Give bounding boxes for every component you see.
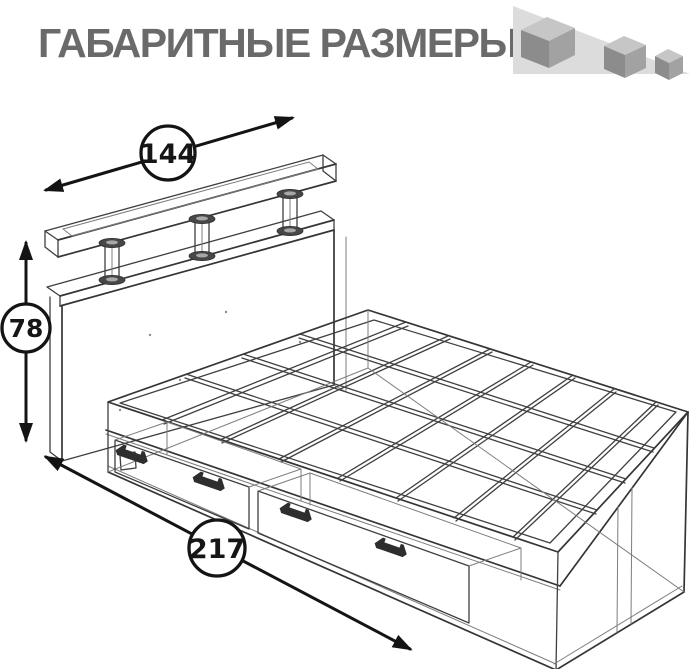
dimension-length: 217	[46, 457, 410, 649]
dimension-width: 144	[46, 118, 292, 190]
post-icon	[99, 238, 125, 284]
page-title: ГАБАРИТНЫЕ РАЗМЕРЫ	[38, 20, 517, 66]
dimension-height: 78	[2, 243, 50, 440]
dimension-length-value: 217	[189, 534, 245, 565]
dimension-height-value: 78	[9, 314, 44, 343]
headboard-panel	[50, 230, 346, 470]
foot-panel-inner-lines	[617, 488, 632, 632]
post-icon	[189, 214, 215, 260]
post-icon	[277, 189, 303, 235]
dimension-diagram-page: ГАБАРИТНЫЕ РАЗМЕРЫ	[0, 0, 700, 669]
cube-small	[655, 49, 683, 80]
storage-drawers	[114, 422, 521, 623]
bed-wireframe-drawing	[45, 155, 688, 669]
shrinking-cubes-icon	[513, 6, 690, 80]
diagram-canvas: ГАБАРИТНЫЕ РАЗМЕРЫ	[0, 0, 700, 669]
dimension-width-value: 144	[140, 139, 196, 170]
bed-deck-grid	[108, 310, 688, 552]
